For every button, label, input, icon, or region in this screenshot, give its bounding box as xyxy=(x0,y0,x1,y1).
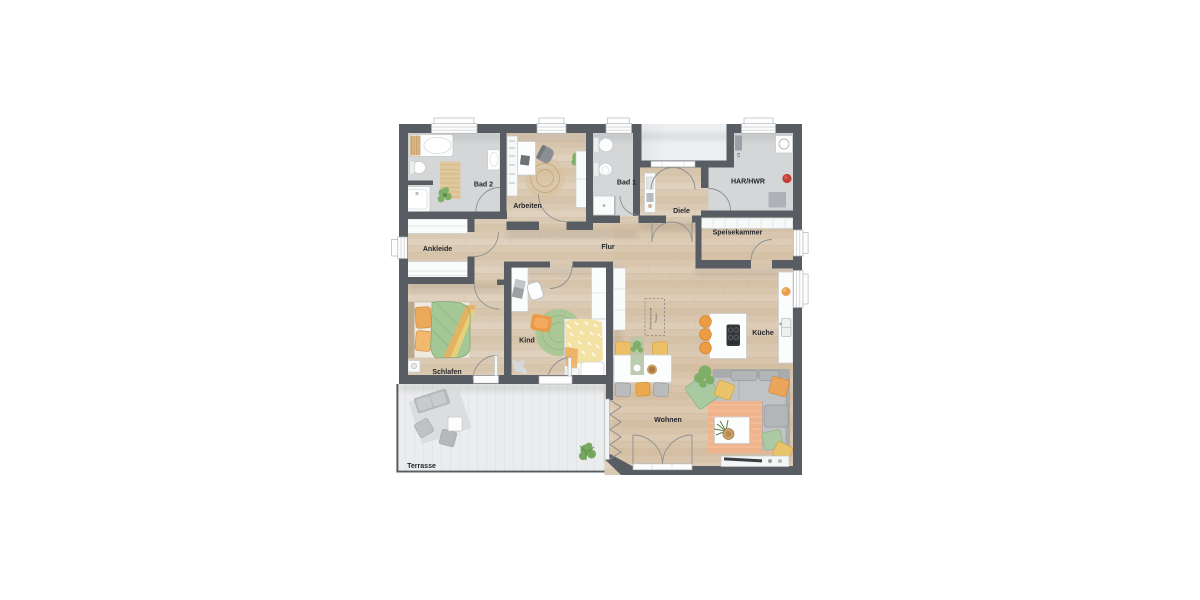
svg-text:Ankleide: Ankleide xyxy=(423,246,452,253)
svg-text:HAR/HWR: HAR/HWR xyxy=(731,179,765,186)
svg-text:Küche: Küche xyxy=(752,330,774,337)
svg-text:Speisekammer: Speisekammer xyxy=(713,230,763,237)
svg-text:Arbeiten: Arbeiten xyxy=(513,203,542,210)
svg-text:Treppe: Treppe xyxy=(654,313,658,323)
svg-text:Schlafen: Schlafen xyxy=(432,369,461,376)
svg-text:Diele: Diele xyxy=(673,208,690,215)
svg-text:Terrasse: Terrasse xyxy=(407,463,436,470)
svg-text:E3: E3 xyxy=(737,153,741,158)
svg-text:Bad 1: Bad 1 xyxy=(617,180,636,187)
svg-text:Flur: Flur xyxy=(601,244,615,251)
svg-text:Bad 2: Bad 2 xyxy=(474,182,493,189)
svg-text:Bodeneinschub-: Bodeneinschub- xyxy=(649,307,653,329)
svg-text:Kind: Kind xyxy=(519,338,535,345)
svg-text:Wohnen: Wohnen xyxy=(654,417,682,424)
